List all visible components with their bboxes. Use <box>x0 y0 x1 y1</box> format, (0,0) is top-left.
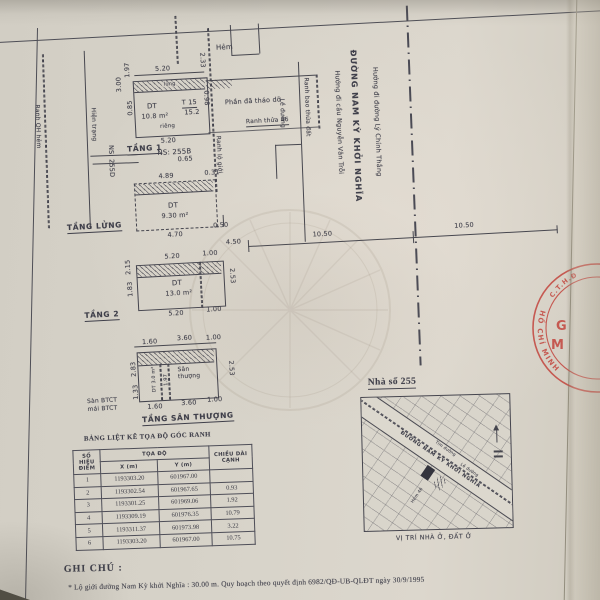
dim-0-50: 0.50 <box>213 221 229 230</box>
roof-btct-roof-label: mái BTCT <box>87 404 117 413</box>
dim-0-65: 0.65 <box>177 154 193 163</box>
roof-dim-2-53: 2.53 <box>227 360 236 376</box>
map-north-arrowhead <box>493 424 499 430</box>
map-scale-mark-1 <box>494 450 503 452</box>
demolished-right-line <box>316 75 321 129</box>
location-map-group: Nhà số 255 Tim đường ĐƯỜNG NAM KỲ KHỞI N… <box>354 372 524 554</box>
map-scale-mark-2 <box>494 455 503 457</box>
roof-top-3-60: 3.60 <box>177 333 193 342</box>
dim-2-15: 2.15 <box>124 259 133 275</box>
boundary-tick-right <box>556 225 557 233</box>
stamp-letter-g: G <box>556 319 567 334</box>
top-dashed-line <box>174 16 179 64</box>
roof-dim-1-97: 1.97 <box>163 374 170 386</box>
floor2-area: 13.0 m² <box>165 288 192 297</box>
floor2-dim-1-00: 1.00 <box>206 305 222 314</box>
dim-1-83: 1.83 <box>126 281 135 297</box>
demolished-bottom-line <box>208 127 318 134</box>
mezzanine-dt-label: DT <box>168 201 178 210</box>
street-centerline <box>406 6 421 366</box>
floor2-dim-bottom: 5.20 <box>168 309 184 318</box>
roof-bottom-1-60: 1.60 <box>147 402 163 411</box>
mezzanine-area: 9.30 m² <box>161 211 188 220</box>
cell-x: 1193303.20 <box>103 535 160 550</box>
roof-title: TẦNG SÂN THƯỢNG <box>142 410 234 426</box>
cell-point: 6 <box>76 537 103 551</box>
dim-10-50-right: 10.50 <box>454 221 474 230</box>
roof-bottom-1-00: 1.00 <box>207 395 223 404</box>
dim-0-31: 0.31 <box>204 168 220 177</box>
notch-line-left <box>230 25 233 55</box>
coordinate-table: SỐ HIỆU ĐIỂM TỌA ĐỘ CHIỀU DÀI CẠNH X (m)… <box>72 444 255 551</box>
floor1-rieng-label: riêng <box>160 123 175 130</box>
header-length: CHIỀU DÀI CẠNH <box>209 444 253 469</box>
dim-top-5-20: 5.20 <box>155 64 171 73</box>
roof-dim-2-83: 2.83 <box>129 361 138 377</box>
stamp-letter-m: M <box>551 338 564 353</box>
red-stamp: C.T.H.Đ HỒ CHÍ MINH G M <box>525 258 600 398</box>
svg-text:C.T.H.Đ: C.T.H.Đ <box>548 271 579 299</box>
scanned-survey-document: Hẻm 2.33 0.98 Ranh lộ giới 5.20 lửng DT … <box>0 0 600 600</box>
floor2-dt-label: DT <box>172 279 182 288</box>
notch-line-right <box>258 24 261 54</box>
cell-point: 1 <box>74 474 101 488</box>
coordinate-table-group: BẢNG LIỆT KÊ TỌA ĐỘ GÓC RANH SỐ HIỆU ĐIỂ… <box>68 427 257 565</box>
roof-dim-1-33: 1.33 <box>131 384 140 400</box>
hien-trang-label: Hiện trạng <box>90 107 98 141</box>
map-caption: VỊ TRÍ NHÀ Ở, ĐẤT Ở <box>396 533 472 542</box>
wall-fraction-bottom: 15.2 <box>184 108 200 117</box>
map-frame: Tim đường ĐƯỜNG NAM KỲ KHỞI NGHĨA Lề đườ… <box>360 393 513 532</box>
direction-ly-chinh-thang: Hướng đi đường Lý Chính Thắng <box>371 67 383 177</box>
floor2-plan: DT 13.0 m² 2.15 1.83 2.53 TẦNG 2 5.20 1.… <box>73 238 322 333</box>
notch-line-bottom <box>231 54 259 56</box>
roof-top-1-00: 1.00 <box>206 333 222 342</box>
stamp-arc-top-text: C.T.H.Đ <box>548 271 579 299</box>
cell-y: 601967.00 <box>160 533 212 547</box>
alley-qh-dashed-line <box>42 54 50 228</box>
notes-line: * Lộ giới đường Nam Kỳ khởi Nghĩa : 30.0… <box>68 575 425 592</box>
cell-point: 5 <box>75 524 102 538</box>
map-title: Nhà số 255 <box>368 377 417 390</box>
cell-point: 2 <box>74 486 101 500</box>
cell-point: 4 <box>75 511 102 525</box>
header-diem: ĐIỂM <box>76 465 98 472</box>
dim-2-53-floor2: 2.53 <box>228 268 237 284</box>
cell-point: 3 <box>75 499 102 513</box>
header-point: SỐ HIỆU ĐIỂM <box>73 450 101 475</box>
dim-2-33: 2.33 <box>198 52 207 68</box>
ranh-qh-hem-label: Ranh QH hẻm <box>34 104 43 148</box>
roof-plan: 1.60 3.60 1.00 DT 3.0 m² 1.97 Sân thượng… <box>77 320 327 437</box>
floor1-area: 10.8 m² <box>141 111 168 120</box>
roof-bottom-3-60: 3.60 <box>181 398 197 407</box>
dim-4-70: 4.70 <box>167 230 183 239</box>
dim-4-89: 4.89 <box>158 171 174 180</box>
floor2-title: TẦNG 2 <box>84 309 119 322</box>
dim-bottom-5-20: 5.20 <box>161 136 177 145</box>
ranh-thua-label: Ranh thửa 46 <box>246 116 289 127</box>
roof-san-thuong-label: Sân thượng <box>177 366 212 382</box>
notes-title: GHI CHÚ : <box>64 563 123 575</box>
floor1-dt-label: DT <box>147 102 157 111</box>
cell-length: 10.75 <box>212 531 255 545</box>
demolished-label: Phần đã tháo dỡ <box>225 95 282 106</box>
demolished-hatch <box>206 79 232 89</box>
mezzanine-title: TẦNG LỬNG <box>67 220 122 234</box>
header-so-hieu: SỐ HIỆU <box>75 453 97 466</box>
floor1-strip-label: lửng <box>162 81 178 88</box>
table-title: BẢNG LIỆT KÊ TỌA ĐỘ GÓC RANH <box>84 431 211 442</box>
